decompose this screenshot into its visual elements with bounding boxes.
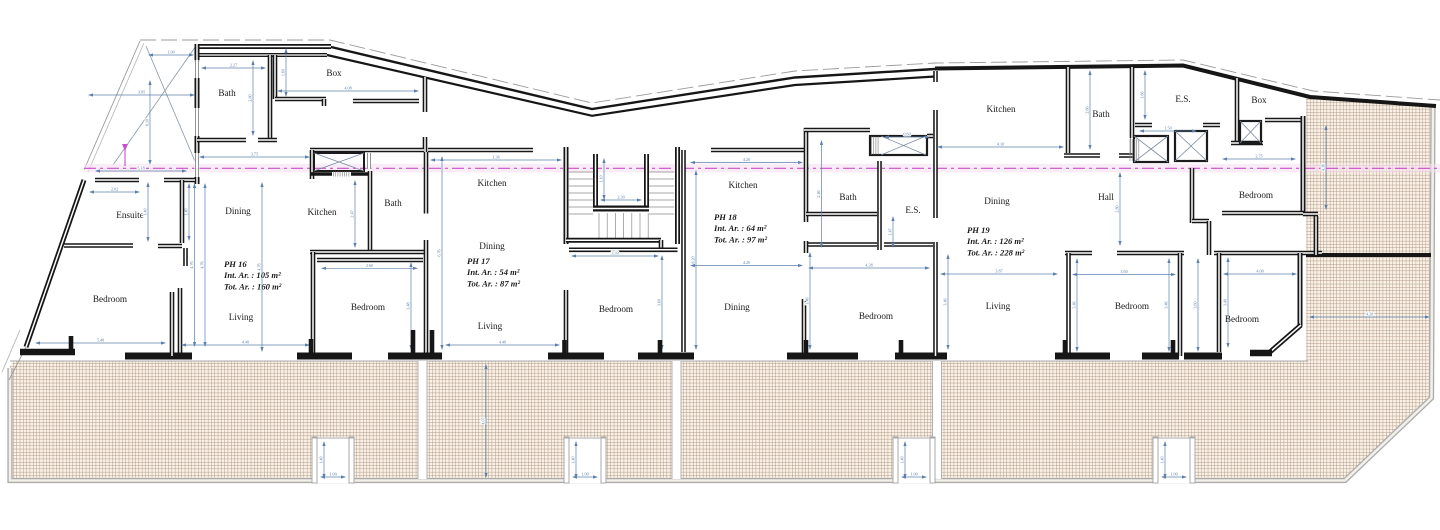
svg-text:4.40: 4.40 bbox=[499, 340, 506, 345]
svg-text:2.66: 2.66 bbox=[1085, 106, 1090, 113]
svg-text:6.76: 6.76 bbox=[437, 249, 442, 256]
svg-text:Bedroom: Bedroom bbox=[1115, 301, 1149, 311]
svg-text:5.18: 5.18 bbox=[137, 166, 144, 171]
svg-text:1.40: 1.40 bbox=[900, 456, 905, 463]
svg-text:PH 16: PH 16 bbox=[224, 259, 247, 269]
svg-text:Box: Box bbox=[326, 68, 342, 78]
svg-text:E.S.: E.S. bbox=[1175, 94, 1190, 104]
svg-text:Tot. Ar. : 87 m²: Tot. Ar. : 87 m² bbox=[467, 279, 520, 289]
svg-text:PH 18: PH 18 bbox=[714, 212, 737, 222]
svg-text:3.46: 3.46 bbox=[1164, 301, 1169, 308]
svg-text:1.00: 1.00 bbox=[581, 472, 588, 477]
svg-text:1.60: 1.60 bbox=[281, 69, 286, 76]
svg-text:0.60: 0.60 bbox=[903, 132, 910, 137]
svg-text:3.75: 3.75 bbox=[251, 152, 258, 157]
svg-text:Hall: Hall bbox=[1098, 192, 1114, 202]
svg-text:PH 19: PH 19 bbox=[967, 225, 990, 235]
svg-text:3.40: 3.40 bbox=[1223, 299, 1228, 306]
svg-text:4.76: 4.76 bbox=[200, 261, 205, 268]
svg-text:Bedroom: Bedroom bbox=[351, 302, 385, 312]
svg-text:3.60: 3.60 bbox=[657, 299, 662, 306]
svg-text:4.76: 4.76 bbox=[189, 261, 194, 268]
svg-text:1.66: 1.66 bbox=[1140, 91, 1145, 98]
svg-text:4.00: 4.00 bbox=[1256, 269, 1263, 274]
svg-text:Bedroom: Bedroom bbox=[1239, 190, 1273, 200]
svg-text:4.10: 4.10 bbox=[997, 142, 1004, 147]
svg-text:8.20: 8.20 bbox=[691, 256, 696, 263]
svg-text:Bedroom: Bedroom bbox=[599, 304, 633, 314]
svg-text:Kitchen: Kitchen bbox=[986, 104, 1015, 114]
svg-text:Bath: Bath bbox=[384, 198, 402, 208]
svg-text:4.20: 4.20 bbox=[743, 260, 750, 265]
svg-text:1.36: 1.36 bbox=[492, 155, 499, 160]
svg-text:2.80: 2.80 bbox=[1115, 205, 1120, 212]
svg-text:8.10: 8.10 bbox=[145, 119, 150, 126]
svg-text:1.40: 1.40 bbox=[319, 456, 324, 463]
svg-text:PH 17: PH 17 bbox=[467, 256, 490, 266]
svg-text:Tot. Ar. : 97 m²: Tot. Ar. : 97 m² bbox=[714, 235, 767, 245]
svg-text:4.76: 4.76 bbox=[257, 263, 262, 270]
svg-text:Kitchen: Kitchen bbox=[307, 207, 336, 217]
svg-text:Int. Ar. : 126 m²: Int. Ar. : 126 m² bbox=[966, 236, 1024, 246]
svg-text:Bedroom: Bedroom bbox=[93, 294, 127, 304]
svg-text:Ensuite: Ensuite bbox=[116, 210, 144, 220]
svg-text:2.27: 2.27 bbox=[230, 63, 237, 68]
svg-text:Int. Ar. : 105 m²: Int. Ar. : 105 m² bbox=[223, 270, 281, 280]
svg-text:1.40: 1.40 bbox=[143, 208, 148, 215]
svg-text:1.40: 1.40 bbox=[571, 456, 576, 463]
svg-text:3.46: 3.46 bbox=[805, 297, 810, 304]
svg-text:Dining: Dining bbox=[479, 241, 505, 251]
svg-text:3.60: 3.60 bbox=[1193, 301, 1198, 308]
svg-text:1.90: 1.90 bbox=[167, 50, 174, 55]
svg-text:2.60: 2.60 bbox=[366, 263, 373, 268]
svg-text:1.50: 1.50 bbox=[1164, 126, 1171, 131]
svg-text:4.20: 4.20 bbox=[743, 157, 750, 162]
svg-text:Living: Living bbox=[229, 312, 254, 322]
svg-text:Kitchen: Kitchen bbox=[728, 180, 757, 190]
svg-text:2.75: 2.75 bbox=[1255, 154, 1262, 159]
svg-text:2.47: 2.47 bbox=[350, 210, 355, 217]
svg-text:4.08: 4.08 bbox=[344, 86, 351, 91]
svg-text:Bath: Bath bbox=[218, 88, 236, 98]
svg-text:3.48: 3.48 bbox=[406, 302, 411, 309]
svg-text:Tot. Ar. : 160 m²: Tot. Ar. : 160 m² bbox=[224, 282, 282, 292]
svg-text:2.80: 2.80 bbox=[248, 94, 253, 101]
svg-text:Living: Living bbox=[986, 301, 1011, 311]
svg-text:1.00: 1.00 bbox=[910, 472, 917, 477]
svg-text:1.00: 1.00 bbox=[1170, 472, 1177, 477]
svg-text:4.07: 4.07 bbox=[481, 417, 486, 424]
svg-text:3.87: 3.87 bbox=[995, 269, 1002, 274]
svg-text:Bath: Bath bbox=[1092, 109, 1110, 119]
svg-text:Dining: Dining bbox=[225, 206, 251, 216]
svg-text:4.38: 4.38 bbox=[865, 263, 872, 268]
svg-text:Int. Ar. : 64 m²: Int. Ar. : 64 m² bbox=[713, 223, 767, 233]
svg-text:Bedroom: Bedroom bbox=[859, 311, 893, 321]
svg-text:Kitchen: Kitchen bbox=[477, 178, 506, 188]
svg-text:Dining: Dining bbox=[984, 196, 1010, 206]
svg-text:3.60: 3.60 bbox=[1120, 269, 1127, 274]
svg-text:1.10: 1.10 bbox=[599, 175, 604, 182]
svg-text:Box: Box bbox=[1251, 95, 1267, 105]
svg-text:Bath: Bath bbox=[839, 192, 857, 202]
svg-text:4.36: 4.36 bbox=[1321, 164, 1326, 171]
svg-text:Dining: Dining bbox=[724, 302, 750, 312]
svg-text:Bedroom: Bedroom bbox=[1225, 314, 1259, 324]
svg-text:2.30: 2.30 bbox=[617, 195, 624, 200]
svg-text:1.47: 1.47 bbox=[888, 228, 893, 235]
svg-text:1.00: 1.00 bbox=[329, 472, 336, 477]
svg-text:Tot. Ar. : 228 m²: Tot. Ar. : 228 m² bbox=[967, 248, 1025, 258]
svg-text:Living: Living bbox=[478, 321, 503, 331]
svg-text:1.40: 1.40 bbox=[1160, 456, 1165, 463]
svg-text:2.02: 2.02 bbox=[111, 187, 118, 192]
svg-text:4.20: 4.20 bbox=[1366, 312, 1373, 317]
svg-text:4.40: 4.40 bbox=[242, 340, 249, 345]
svg-text:E.S.: E.S. bbox=[905, 205, 920, 215]
svg-text:5.40: 5.40 bbox=[97, 338, 104, 343]
svg-text:3.33: 3.33 bbox=[611, 251, 618, 256]
svg-text:Int. Ar. : 54 m²: Int. Ar. : 54 m² bbox=[466, 267, 520, 277]
svg-text:3.46: 3.46 bbox=[943, 298, 948, 305]
svg-text:3.95: 3.95 bbox=[138, 90, 145, 95]
svg-text:3.46: 3.46 bbox=[1072, 301, 1077, 308]
svg-text:2.46: 2.46 bbox=[816, 190, 821, 197]
